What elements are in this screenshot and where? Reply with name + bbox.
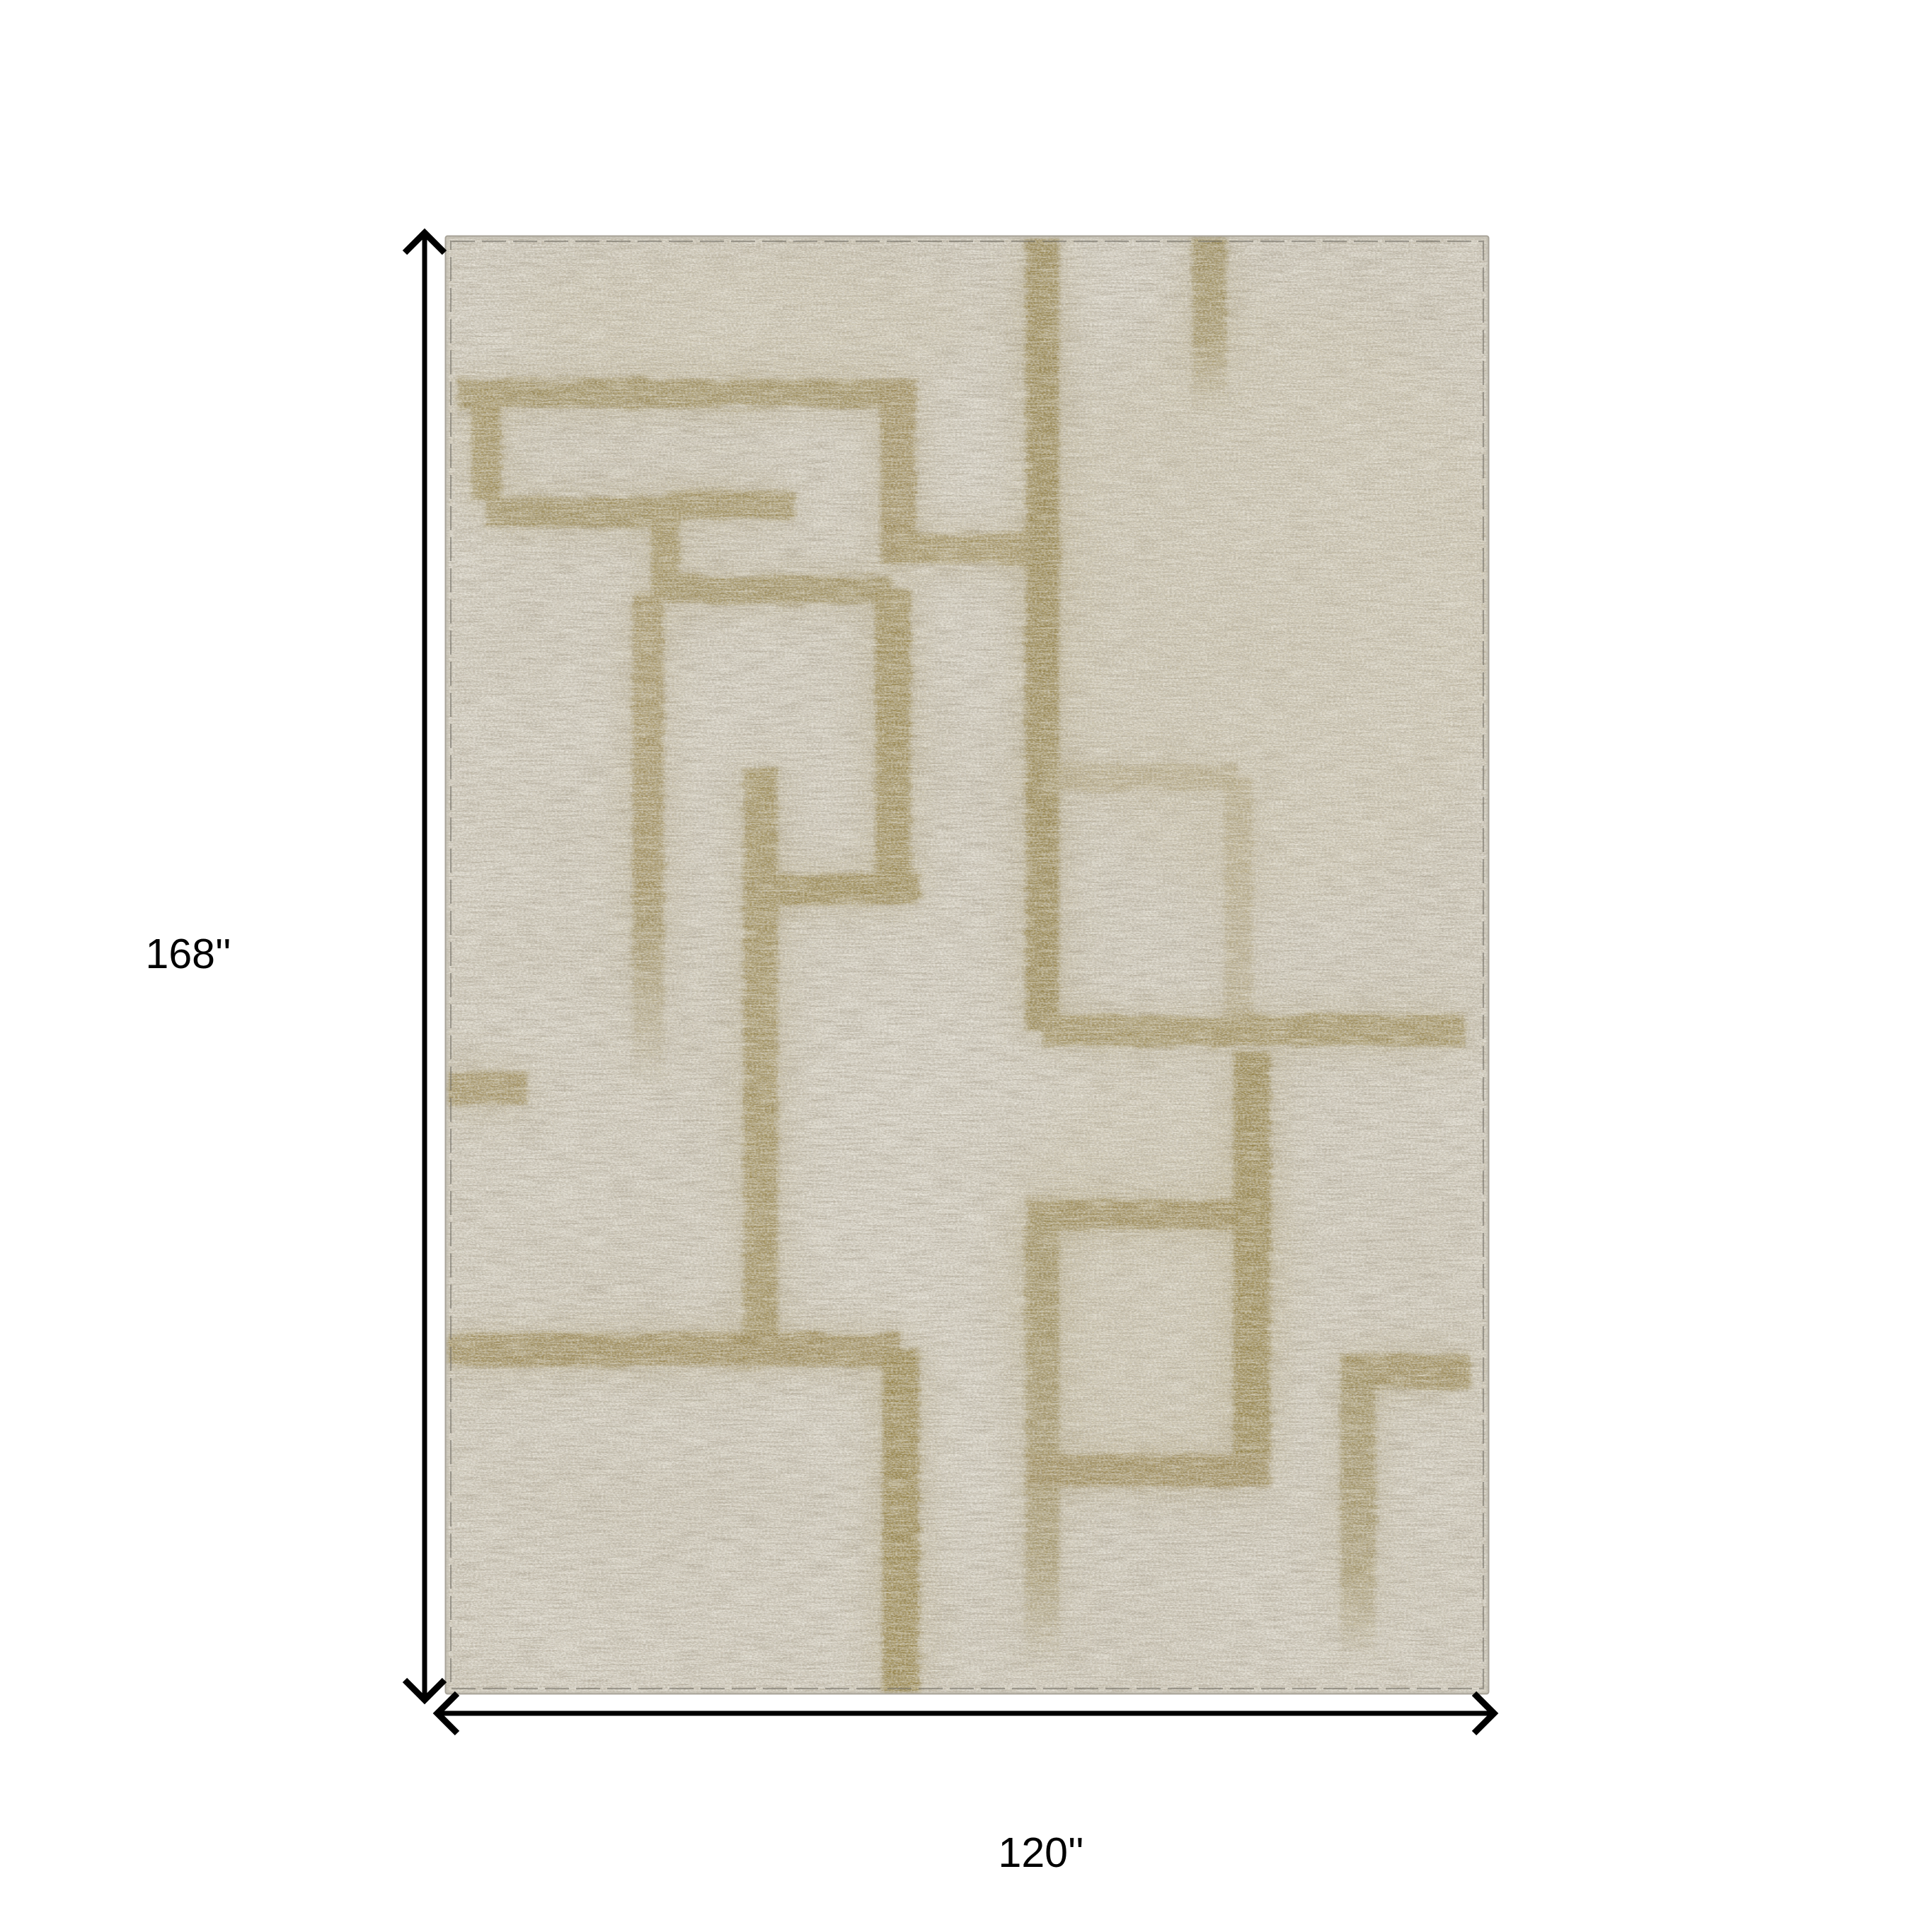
svg-text:168'': 168''	[146, 931, 231, 977]
svg-text:120'': 120''	[999, 1829, 1084, 1876]
